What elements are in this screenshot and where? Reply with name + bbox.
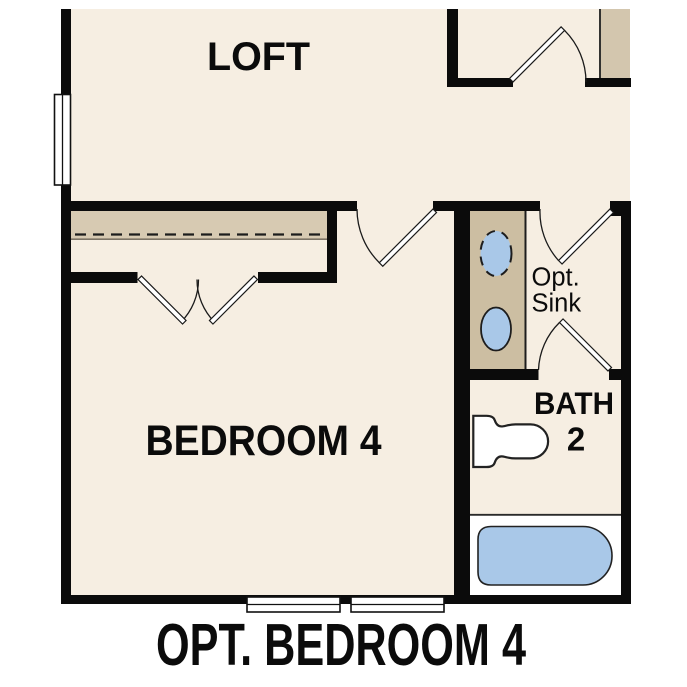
svg-text:BEDROOM 4: BEDROOM 4	[146, 417, 382, 465]
svg-text:Opt.: Opt.	[532, 264, 580, 292]
svg-text:BATH: BATH	[534, 385, 614, 421]
svg-text:LOFT: LOFT	[207, 35, 310, 79]
svg-text:OPT. BEDROOM 4: OPT. BEDROOM 4	[156, 612, 526, 678]
svg-text:2: 2	[567, 421, 585, 458]
svg-text:Sink: Sink	[532, 290, 582, 318]
